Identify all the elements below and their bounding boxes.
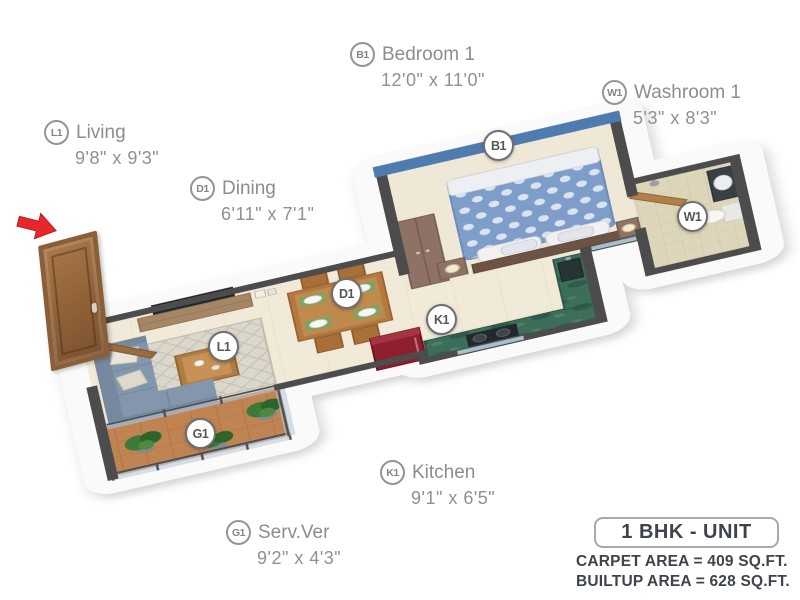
dining-dims: 6'11" x 7'1" (190, 204, 314, 225)
floor-badge-bedroom: B1 (483, 130, 514, 161)
entrance-door-panel (51, 247, 97, 356)
floor-badge-washroom: W1 (677, 201, 708, 232)
bedroom-dims: 12'0" x 11'0" (350, 70, 485, 91)
kitchen-dims: 9'1" x 6'5" (380, 488, 495, 509)
servver-name: Serv.Ver (258, 522, 329, 544)
dining-badge-icon: D1 (190, 176, 215, 201)
kitchen-label: K1 Kitchen 9'1" x 6'5" (380, 460, 495, 509)
washroom-name: Washroom 1 (634, 82, 741, 104)
washroom-label: W1 Washroom 1 5'3" x 8'3" (602, 80, 741, 129)
unit-info-block: 1 BHK - UNIT CARPET AREA = 409 SQ.FT. BU… (576, 517, 792, 591)
servver-badge-icon: G1 (226, 520, 251, 545)
unit-type-box: 1 BHK - UNIT (594, 517, 779, 548)
kitchen-name: Kitchen (412, 462, 475, 484)
entrance-door-handle (91, 302, 97, 313)
kitchen-badge-icon: K1 (380, 460, 405, 485)
floor-badge-living: L1 (208, 331, 239, 362)
floorplan-page: { "page": {"background": "#ffffff", "typ… (0, 0, 800, 600)
floor-badge-servver: G1 (185, 418, 216, 449)
dining-name: Dining (222, 178, 276, 200)
bedroom-label: B1 Bedroom 1 12'0" x 11'0" (350, 42, 485, 91)
carpet-area-text: CARPET AREA = 409 SQ.FT. (576, 552, 792, 571)
servver-label: G1 Serv.Ver 9'2" x 4'3" (226, 520, 341, 569)
living-dims: 9'8" x 9'3" (44, 148, 159, 169)
unit-type-title: 1 BHK - UNIT (621, 521, 751, 544)
living-name: Living (76, 122, 126, 144)
bedroom-badge-icon: B1 (350, 42, 375, 67)
servver-dims: 9'2" x 4'3" (226, 548, 341, 569)
floor-badge-dining: D1 (331, 278, 362, 309)
dining-label: D1 Dining 6'11" x 7'1" (190, 176, 314, 225)
living-badge-icon: L1 (44, 120, 69, 145)
bedroom-name: Bedroom 1 (382, 44, 475, 66)
builtup-area-text: BUILTUP AREA = 628 SQ.FT. (576, 572, 792, 591)
floor-badge-kitchen: K1 (426, 304, 457, 335)
washroom-badge-icon: W1 (602, 80, 627, 105)
living-label: L1 Living 9'8" x 9'3" (44, 120, 159, 169)
washroom-dims: 5'3" x 8'3" (602, 108, 741, 129)
